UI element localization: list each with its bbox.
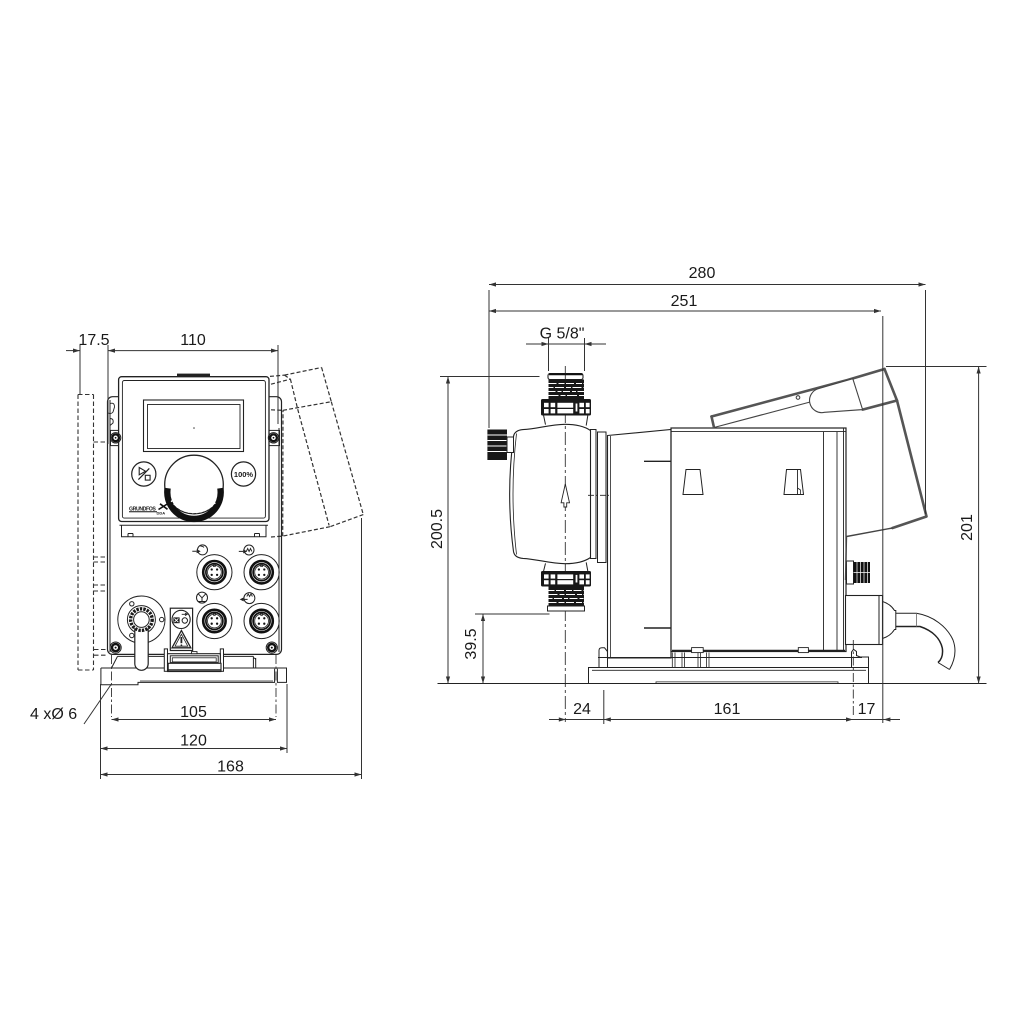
svg-text:39.5: 39.5 — [463, 628, 480, 659]
svg-text:105: 105 — [180, 704, 207, 721]
svg-text:17.5: 17.5 — [78, 332, 109, 349]
svg-text:17: 17 — [858, 701, 876, 718]
svg-text:168: 168 — [217, 759, 244, 776]
svg-text:4 xØ 6: 4 xØ 6 — [30, 706, 77, 723]
svg-text:251: 251 — [671, 293, 698, 310]
svg-text:24: 24 — [573, 701, 591, 718]
svg-text:G 5/8": G 5/8" — [540, 326, 585, 343]
svg-text:110: 110 — [180, 332, 206, 349]
svg-text:200.5: 200.5 — [429, 509, 446, 549]
svg-text:201: 201 — [959, 514, 976, 541]
svg-text:280: 280 — [689, 265, 716, 282]
svg-text:120: 120 — [180, 733, 207, 750]
svg-text:DDA: DDA — [157, 511, 166, 516]
svg-text:100%: 100% — [234, 470, 254, 479]
svg-text:161: 161 — [714, 701, 741, 718]
